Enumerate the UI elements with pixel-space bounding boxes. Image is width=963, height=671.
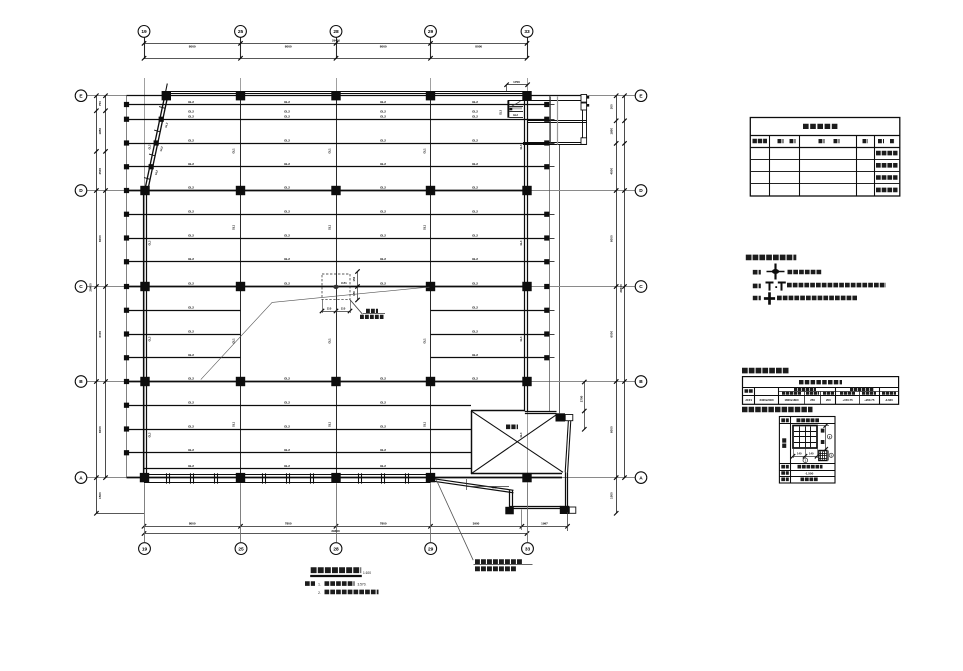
svg-text:GL2: GL2 xyxy=(284,377,290,381)
svg-text:GL2: GL2 xyxy=(472,138,478,142)
svg-text:GL3: GL3 xyxy=(149,336,152,341)
svg-text:6000: 6000 xyxy=(609,331,613,338)
svg-text:GL2: GL2 xyxy=(188,257,194,261)
svg-text:4500: 4500 xyxy=(98,168,102,175)
svg-text:GL2: GL2 xyxy=(380,464,386,468)
svg-text:GL2: GL2 xyxy=(513,114,518,117)
svg-text:750: 750 xyxy=(98,101,102,106)
svg-text:GL2: GL2 xyxy=(188,233,194,237)
svg-text:GL1: GL1 xyxy=(328,224,332,230)
svg-text:GL2: GL2 xyxy=(284,138,290,142)
svg-text:1850: 1850 xyxy=(609,128,613,135)
svg-text:GL3: GL3 xyxy=(520,240,523,245)
svg-text:6000: 6000 xyxy=(98,331,102,338)
svg-text:GL3: GL3 xyxy=(520,432,523,437)
svg-text:B: B xyxy=(639,379,643,385)
svg-text:GL2: GL2 xyxy=(380,401,386,405)
svg-text:1997: 1997 xyxy=(541,522,548,526)
svg-text:19: 19 xyxy=(142,546,148,552)
svg-text:GL3: GL3 xyxy=(149,144,152,149)
svg-text:33: 33 xyxy=(524,29,530,35)
svg-text:1700: 1700 xyxy=(513,80,520,84)
svg-text:GL2: GL2 xyxy=(284,210,290,214)
svg-text:GL1: GL1 xyxy=(232,338,236,344)
svg-text:D: D xyxy=(639,188,643,194)
svg-text:GL2: GL2 xyxy=(472,186,478,190)
svg-text:6000: 6000 xyxy=(98,426,102,433)
svg-text:2.: 2. xyxy=(318,591,321,595)
svg-text:GL2: GL2 xyxy=(188,110,194,114)
svg-text:GL2: GL2 xyxy=(188,100,194,104)
svg-text:6000: 6000 xyxy=(609,235,613,242)
svg-text:GL2: GL2 xyxy=(380,257,386,261)
svg-text:GL2: GL2 xyxy=(380,448,386,452)
svg-text:GL2: GL2 xyxy=(188,210,194,214)
svg-text:GL1: GL1 xyxy=(232,421,236,427)
svg-text:1850: 1850 xyxy=(98,128,102,135)
svg-text:GL2: GL2 xyxy=(472,257,478,261)
svg-text:GL2: GL2 xyxy=(188,464,194,468)
svg-text:3.570.: 3.570. xyxy=(358,583,367,587)
svg-text:28: 28 xyxy=(333,29,339,35)
svg-text:1.: 1. xyxy=(318,583,321,587)
svg-text:GL2: GL2 xyxy=(472,329,478,333)
svg-text:8000: 8000 xyxy=(189,522,196,526)
svg-text:200: 200 xyxy=(826,398,831,402)
svg-text:7800: 7800 xyxy=(380,522,387,526)
svg-text:29400: 29400 xyxy=(332,39,340,43)
svg-text:2400x2400: 2400x2400 xyxy=(760,398,774,402)
svg-text:GL2: GL2 xyxy=(284,448,290,452)
svg-text:GL1: GL1 xyxy=(328,338,332,344)
svg-text:GL3: GL3 xyxy=(520,144,523,149)
svg-text:GL2: GL2 xyxy=(380,162,386,166)
svg-text:GL2: GL2 xyxy=(472,210,478,214)
svg-text:140: 140 xyxy=(797,452,802,456)
svg-text:GL1: GL1 xyxy=(232,148,236,154)
svg-text:8000: 8000 xyxy=(285,44,292,48)
svg-text:7800: 7800 xyxy=(285,522,292,526)
svg-text:GL2: GL2 xyxy=(188,377,194,381)
svg-text:3900: 3900 xyxy=(473,522,480,526)
svg-text:GL2: GL2 xyxy=(380,115,386,119)
svg-text:29: 29 xyxy=(428,546,434,552)
svg-text:GL1: GL1 xyxy=(328,421,332,427)
svg-text:GL2: GL2 xyxy=(284,464,290,468)
svg-text:GL2: GL2 xyxy=(380,377,386,381)
svg-text:GL1: GL1 xyxy=(423,148,427,154)
svg-text:GL2: GL2 xyxy=(284,401,290,405)
svg-text:140: 140 xyxy=(809,452,814,456)
svg-text:GL1: GL1 xyxy=(328,148,332,154)
svg-text:25: 25 xyxy=(238,29,244,35)
svg-text:GL2: GL2 xyxy=(472,233,478,237)
svg-text:29: 29 xyxy=(428,29,434,35)
svg-text:GL1: GL1 xyxy=(232,224,236,230)
svg-text:GL2: GL2 xyxy=(284,100,290,104)
svg-text:GL2: GL2 xyxy=(472,115,478,119)
svg-text:GL2: GL2 xyxy=(284,233,290,237)
svg-text:CZ1: CZ1 xyxy=(341,281,347,285)
svg-text:+200.75: +200.75 xyxy=(864,398,875,402)
svg-text:250: 250 xyxy=(810,398,815,402)
svg-text:300: 300 xyxy=(609,104,613,109)
svg-text:110: 110 xyxy=(327,307,332,311)
svg-text:GL3: GL3 xyxy=(149,432,152,437)
svg-text:6000: 6000 xyxy=(609,426,613,433)
svg-text:GL2: GL2 xyxy=(472,162,478,166)
svg-text:GL3: GL3 xyxy=(149,240,152,245)
svg-text:GL2: GL2 xyxy=(188,424,194,428)
svg-text:GL2: GL2 xyxy=(380,100,386,104)
svg-text:GL2: GL2 xyxy=(472,353,478,357)
svg-text:29400: 29400 xyxy=(331,529,340,533)
svg-text:GL2: GL2 xyxy=(380,424,386,428)
svg-text:6000: 6000 xyxy=(98,235,102,242)
svg-text:1500: 1500 xyxy=(98,492,102,499)
svg-text:GL2: GL2 xyxy=(284,282,290,286)
svg-text:GL2: GL2 xyxy=(472,110,478,114)
svg-text:GL1: GL1 xyxy=(423,421,427,427)
svg-text:450: 450 xyxy=(491,485,496,489)
svg-text:33: 33 xyxy=(525,546,531,552)
svg-text:19: 19 xyxy=(141,29,147,35)
svg-text:8000: 8000 xyxy=(475,44,482,48)
svg-text:GL1: GL1 xyxy=(423,224,427,230)
svg-text:GL2: GL2 xyxy=(472,377,478,381)
svg-text:D: D xyxy=(79,188,83,194)
svg-text:150: 150 xyxy=(352,291,356,296)
svg-text:28: 28 xyxy=(333,546,339,552)
svg-text:GL2: GL2 xyxy=(284,424,290,428)
svg-text:GL2: GL2 xyxy=(284,115,290,119)
svg-text:A: A xyxy=(79,475,83,481)
svg-text:GL2: GL2 xyxy=(284,186,290,190)
svg-text:A: A xyxy=(639,475,643,481)
svg-text:GL2: GL2 xyxy=(380,233,386,237)
svg-text:GL2: GL2 xyxy=(188,353,194,357)
svg-text:GL2: GL2 xyxy=(380,110,386,114)
svg-text:GL2: GL2 xyxy=(380,210,386,214)
svg-text:GL2: GL2 xyxy=(188,162,194,166)
svg-text:GL2: GL2 xyxy=(188,448,194,452)
svg-text:GL2: GL2 xyxy=(380,282,386,286)
svg-text:1800x1800: 1800x1800 xyxy=(785,398,799,402)
svg-text:GL2: GL2 xyxy=(188,329,194,333)
svg-text:+150.75: +150.75 xyxy=(842,398,853,402)
svg-text:8000: 8000 xyxy=(380,44,387,48)
svg-text:C: C xyxy=(79,284,83,290)
svg-text:4500: 4500 xyxy=(609,168,613,175)
svg-text:GL2: GL2 xyxy=(472,100,478,104)
svg-text:GL2: GL2 xyxy=(188,401,194,405)
svg-text:GL2: GL2 xyxy=(472,282,478,286)
svg-text:29400: 29400 xyxy=(89,283,93,292)
svg-text:GL2: GL2 xyxy=(188,115,194,119)
svg-text:GL2: GL2 xyxy=(188,306,194,310)
svg-text:GL2: GL2 xyxy=(188,186,194,190)
svg-text:GL3: GL3 xyxy=(499,109,503,115)
svg-text:JCZ1: JCZ1 xyxy=(745,398,752,402)
svg-text:GL2: GL2 xyxy=(472,306,478,310)
svg-text:C: C xyxy=(639,284,643,290)
svg-text:29400: 29400 xyxy=(619,284,623,293)
svg-text:GL2: GL2 xyxy=(284,162,290,166)
svg-text:-3.620: -3.620 xyxy=(885,398,893,402)
svg-text:1500: 1500 xyxy=(609,492,613,499)
svg-text:GL1: GL1 xyxy=(423,338,427,344)
svg-text:B: B xyxy=(79,379,83,385)
svg-text:GL3: GL3 xyxy=(520,336,523,341)
svg-text:GL2: GL2 xyxy=(380,186,386,190)
svg-text:GL2: GL2 xyxy=(284,257,290,261)
svg-text:8000: 8000 xyxy=(189,44,196,48)
svg-text:GL2: GL2 xyxy=(188,138,194,142)
svg-text:150: 150 xyxy=(352,276,356,281)
svg-text:GL2: GL2 xyxy=(380,138,386,142)
svg-text:2700: 2700 xyxy=(580,395,584,402)
svg-text:-1.500: -1.500 xyxy=(805,471,814,475)
svg-text:110: 110 xyxy=(341,307,346,311)
svg-text:GL2: GL2 xyxy=(284,110,290,114)
svg-text:25: 25 xyxy=(238,546,244,552)
svg-text:1:100: 1:100 xyxy=(363,571,371,575)
svg-text:GL2: GL2 xyxy=(188,282,194,286)
